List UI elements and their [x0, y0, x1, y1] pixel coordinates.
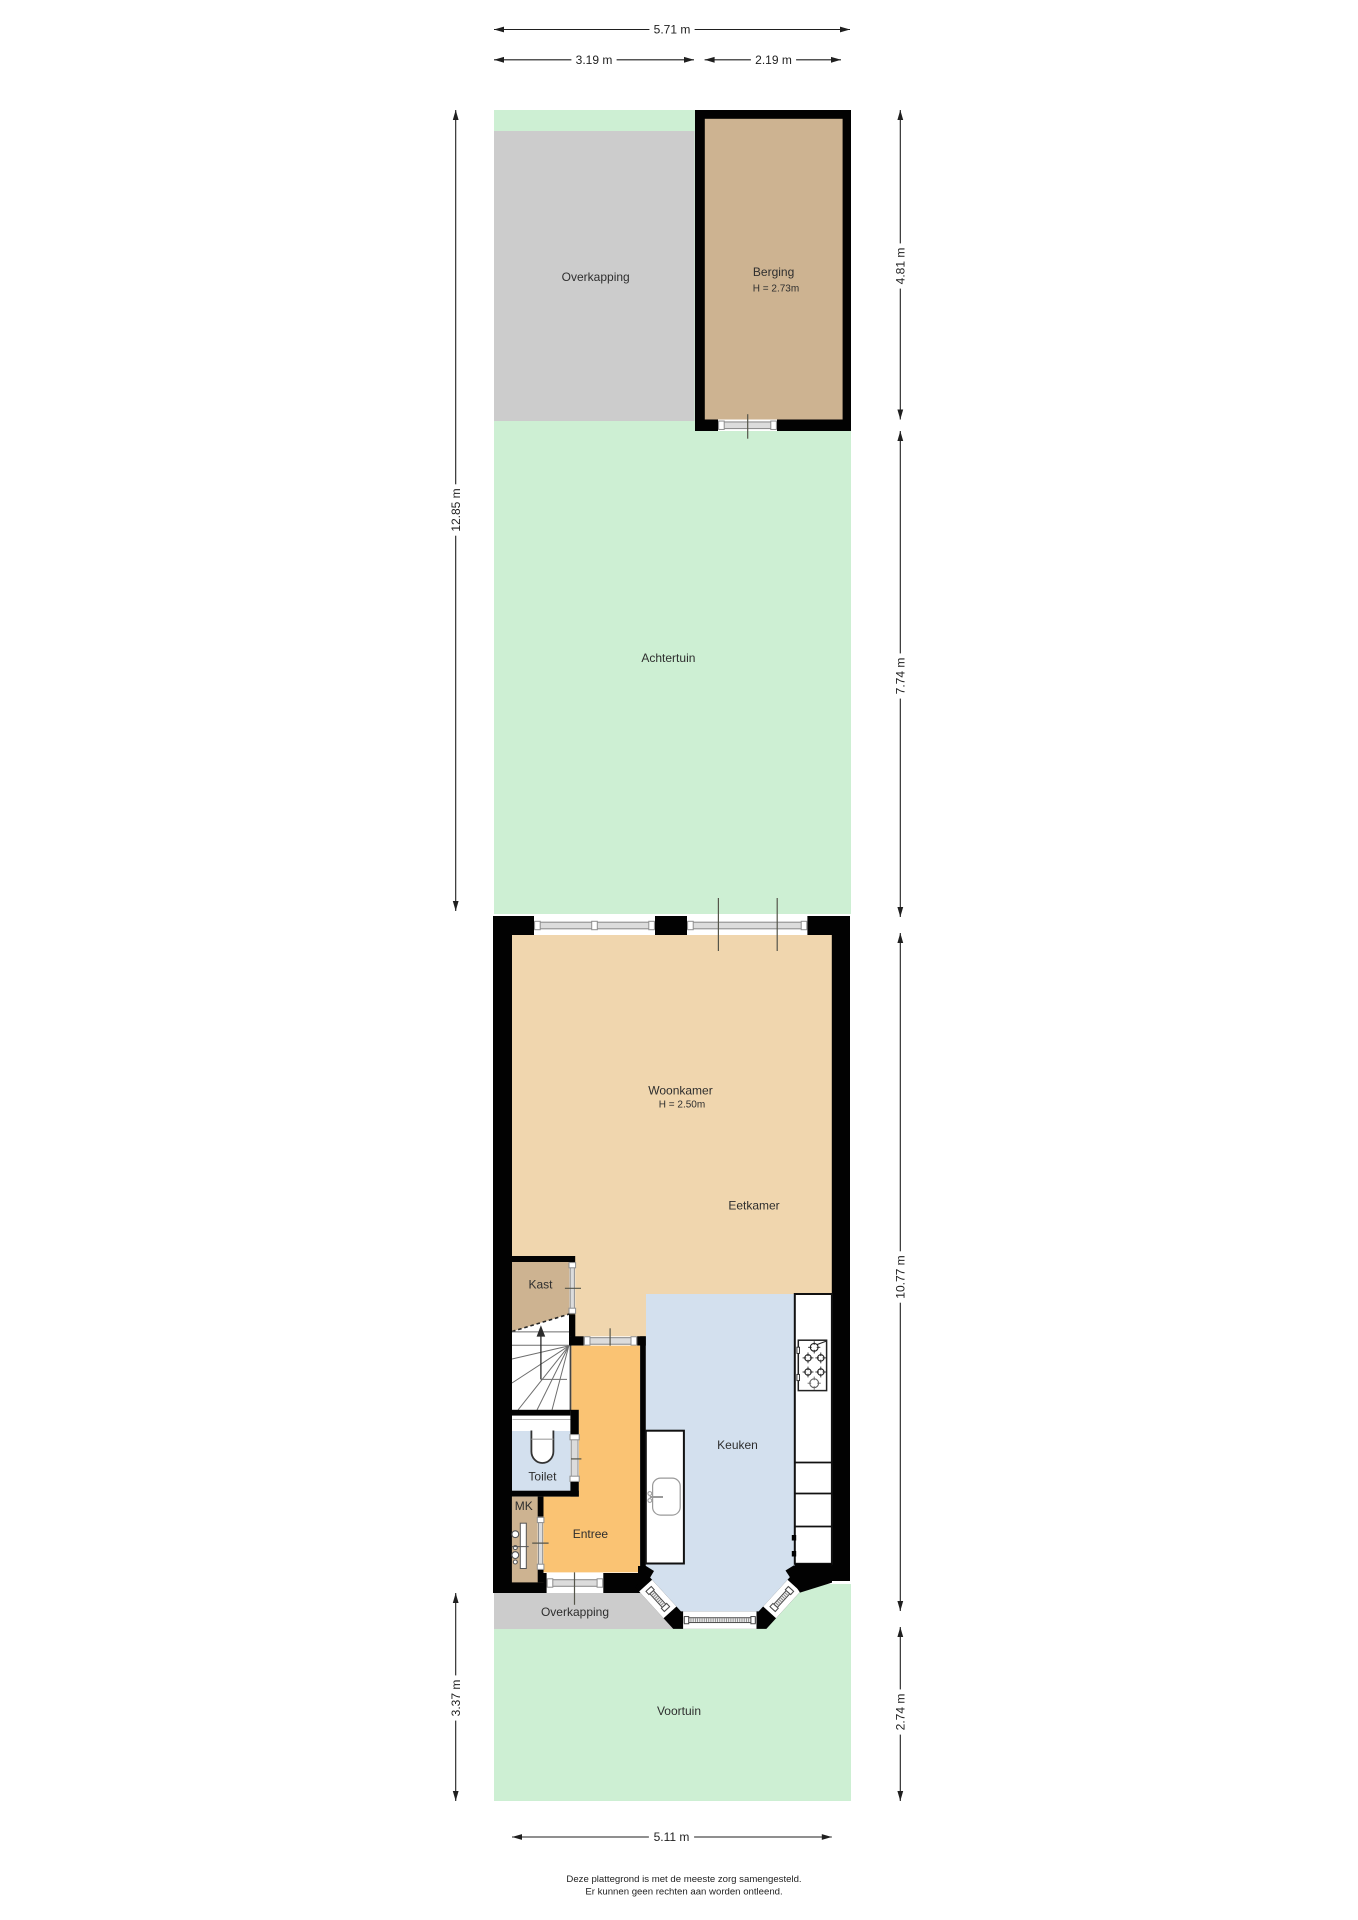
svg-text:MK: MK: [515, 1499, 533, 1513]
svg-text:Toilet: Toilet: [528, 1469, 557, 1483]
svg-text:Berging: Berging: [753, 265, 794, 279]
svg-text:Overkapping: Overkapping: [562, 270, 630, 284]
svg-text:7.74 m: 7.74 m: [894, 658, 908, 695]
svg-text:Woonkamer: Woonkamer: [648, 1084, 712, 1098]
svg-text:10.77 m: 10.77 m: [894, 1255, 908, 1298]
svg-text:12.85 m: 12.85 m: [449, 488, 463, 531]
svg-text:Keuken: Keuken: [717, 1438, 758, 1452]
svg-text:Achtertuin: Achtertuin: [641, 651, 695, 665]
svg-text:5.11 m: 5.11 m: [654, 1830, 690, 1844]
svg-text:2.19 m: 2.19 m: [755, 53, 792, 67]
svg-text:3.37 m: 3.37 m: [449, 1680, 463, 1717]
svg-text:2.74 m: 2.74 m: [894, 1694, 908, 1731]
svg-text:4.81 m: 4.81 m: [894, 248, 908, 285]
svg-text:Entree: Entree: [573, 1527, 609, 1541]
svg-text:Kast: Kast: [528, 1278, 553, 1292]
svg-text:Overkapping: Overkapping: [541, 1605, 609, 1619]
svg-text:H = 2.50m: H = 2.50m: [659, 1100, 705, 1111]
svg-text:Deze plattegrond is met de mee: Deze plattegrond is met de meeste zorg s…: [566, 1874, 801, 1885]
svg-text:Voortuin: Voortuin: [657, 1704, 701, 1718]
svg-text:3.19 m: 3.19 m: [576, 53, 613, 67]
svg-text:Eetkamer: Eetkamer: [728, 1199, 779, 1213]
svg-text:H = 2.73m: H = 2.73m: [753, 284, 799, 295]
svg-text:Er kunnen geen rechten aan wor: Er kunnen geen rechten aan worden ontlee…: [585, 1887, 782, 1898]
svg-text:5.71 m: 5.71 m: [654, 23, 691, 37]
